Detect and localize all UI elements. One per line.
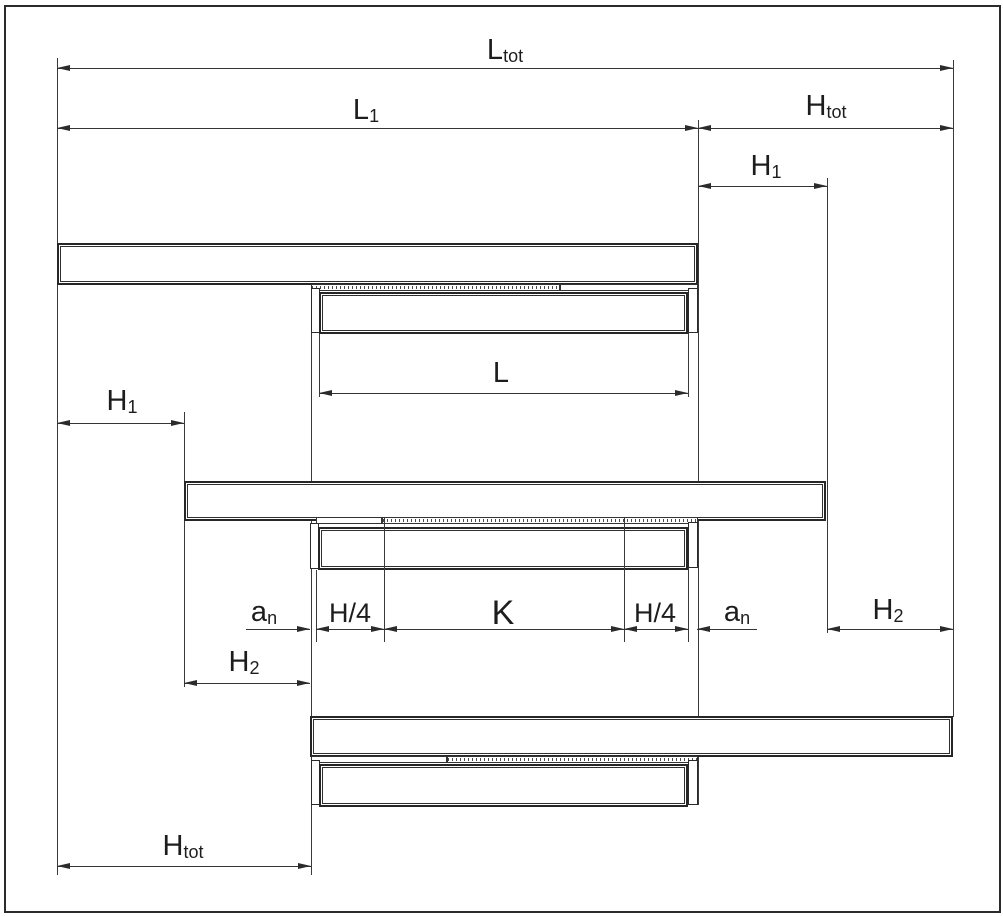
rail-inner-contour: [187, 484, 823, 518]
label-h4-left: H/4: [329, 600, 371, 627]
label-h4-right: H/4: [634, 600, 676, 627]
arrowhead-icon: [57, 65, 70, 71]
arrowhead-icon: [940, 65, 953, 71]
dim-line-h2-left: [184, 683, 310, 684]
dim-line-htot-top: [698, 128, 953, 129]
arrowhead-icon: [698, 183, 711, 189]
arrowhead-icon: [57, 863, 70, 869]
rail-inner-member-retracted: [319, 292, 688, 334]
ball-cage-hatched-segment: [311, 284, 560, 291]
arrowhead-icon: [685, 125, 698, 131]
dim-line-h1-right: [698, 186, 827, 187]
ball-cage-strip-retracted: [311, 284, 698, 292]
arrowhead-icon: [697, 626, 710, 632]
arrowhead-icon: [940, 626, 953, 632]
rail-outer-member-half-extended: [184, 481, 826, 521]
arrowhead-icon: [298, 863, 311, 869]
arrowhead-icon: [611, 626, 624, 632]
rail-outer-member-extended: [310, 716, 953, 757]
arrowhead-icon: [57, 420, 70, 426]
label-h1-left: H1: [107, 387, 138, 416]
arrowhead-icon: [184, 680, 197, 686]
extension-line-k-left-overlay: [384, 518, 385, 642]
rail-inner-member-extended: [319, 764, 688, 807]
extension-line-k-right-overlay: [624, 518, 625, 642]
label-h1-right: H1: [751, 152, 782, 181]
extension-line-h1-right: [827, 178, 828, 633]
ball-cage-strip-half-extended: [316, 517, 698, 525]
arrowhead-icon: [940, 125, 953, 131]
extension-line-h1-left: [184, 412, 185, 687]
label-htot-top: Htot: [806, 92, 847, 121]
label-l: L: [493, 359, 509, 388]
dim-line-l: [319, 393, 688, 394]
rail-end-cap-right: [688, 760, 698, 805]
label-an-right: an: [724, 598, 750, 627]
label-h2-left: H2: [229, 648, 260, 677]
rail-inner-contour: [60, 246, 695, 282]
arrowhead-icon: [814, 183, 827, 189]
extension-line-right-master: [953, 60, 954, 717]
rail-end-cap-right: [688, 288, 698, 333]
dim-line-h2-right: [827, 629, 953, 630]
arrowhead-icon: [827, 626, 840, 632]
label-k: K: [492, 596, 515, 630]
dim-line-htot-bottom: [57, 866, 311, 867]
arrowhead-icon: [316, 626, 329, 632]
rail-inner-contour: [321, 530, 685, 567]
ball-cage-plain-segment: [311, 756, 447, 763]
ball-cage-strip-extended: [311, 756, 698, 764]
rail-inner-contour: [322, 767, 685, 804]
extension-line-left-master: [57, 58, 58, 875]
ball-cage-plain-segment: [560, 284, 698, 291]
label-ltot: Ltot: [487, 36, 523, 65]
rail-inner-contour: [313, 719, 950, 754]
label-h2-right: H2: [873, 596, 904, 625]
technical-drawing-canvas: Ltot L1 Htot H1 L H1 an H/4: [0, 0, 1003, 917]
ball-cage-hatched-segment: [382, 517, 698, 524]
dim-line-h1-left: [57, 423, 184, 424]
ball-cage-plain-segment: [316, 517, 382, 524]
rail-end-cap-right: [688, 522, 698, 568]
ball-cage-hatched-segment: [447, 756, 698, 763]
arrowhead-icon: [297, 626, 310, 632]
arrowhead-icon: [675, 626, 688, 632]
arrowhead-icon: [698, 125, 711, 131]
arrowhead-icon: [57, 125, 70, 131]
rail-inner-contour: [322, 295, 685, 331]
rail-inner-member-half-extended: [318, 527, 688, 570]
arrowhead-icon: [675, 390, 688, 396]
arrowhead-icon: [171, 420, 184, 426]
rail-outer-member-retracted: [57, 243, 698, 285]
label-an-left: an: [251, 598, 277, 627]
extension-line-l1-boundary: [698, 120, 699, 805]
dim-line-l1: [57, 128, 698, 129]
dim-line-ltot: [57, 68, 953, 69]
arrowhead-icon: [371, 626, 384, 632]
label-htot-bottom: Htot: [163, 832, 204, 861]
arrowhead-icon: [297, 680, 310, 686]
arrowhead-icon: [384, 626, 397, 632]
label-l1: L1: [353, 96, 379, 125]
arrowhead-icon: [319, 390, 332, 396]
